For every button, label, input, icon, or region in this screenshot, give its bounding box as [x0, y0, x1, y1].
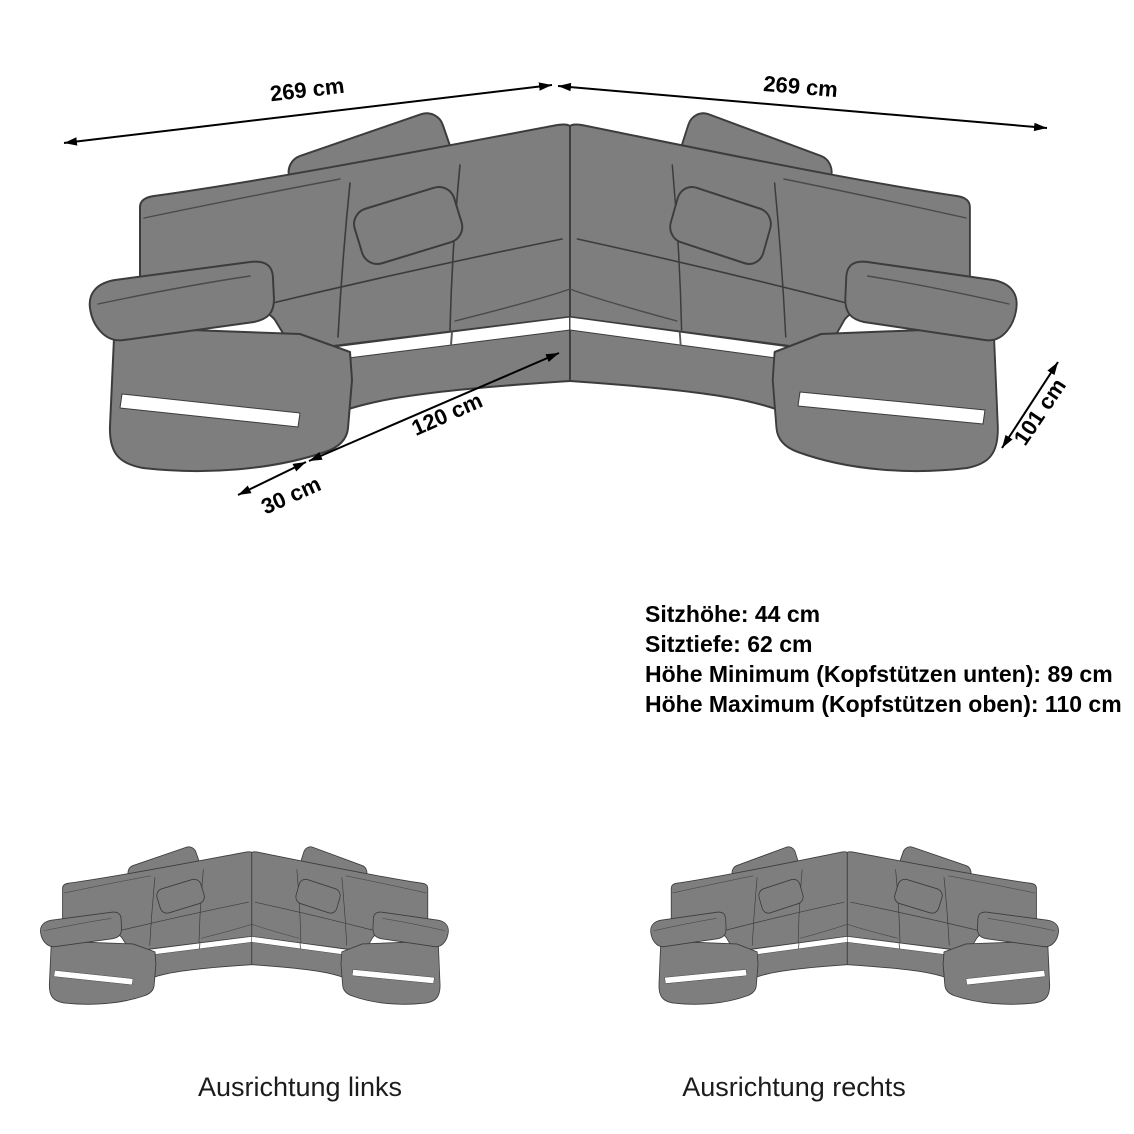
spec-line-seat-depth: Sitztiefe: 62 cm [645, 631, 812, 657]
dimension-label: 120 cm [408, 388, 486, 441]
product-dimension-diagram: 269 cm 269 cm 120 cm 30 cm 101 cm Sitzhö… [0, 0, 1134, 1134]
spec-line-height-min: Höhe Minimum (Kopfstützen unten): 89 cm [645, 661, 1113, 687]
variant-right-illustration [651, 845, 1059, 1004]
dimension-label: 30 cm [257, 471, 324, 519]
diagram-svg: 269 cm 269 cm 120 cm 30 cm 101 cm Sitzhö… [0, 0, 1134, 1134]
arm-pad [90, 262, 274, 341]
variant-left-label: Ausrichtung links [198, 1072, 402, 1102]
dimension-back-left: 269 cm [64, 73, 552, 143]
spec-line-height-max: Höhe Maximum (Kopfstützen oben): 110 cm [645, 691, 1122, 717]
dimension-label: 101 cm [1009, 374, 1071, 450]
dimension-side-depth: 101 cm [1002, 362, 1071, 450]
dimension-back-right: 269 cm [558, 71, 1047, 128]
corner-sofa-illustration [90, 109, 1017, 471]
dimension-arm-front: 30 cm [238, 462, 325, 519]
sofa-wing [90, 109, 570, 471]
dimension-label: 269 cm [762, 71, 838, 102]
spec-text-block: Sitzhöhe: 44 cm Sitztiefe: 62 cm Höhe Mi… [645, 601, 1122, 717]
dimension-label: 269 cm [269, 73, 346, 107]
variant-right-label: Ausrichtung rechts [682, 1072, 906, 1102]
led-stripe-seam [451, 332, 452, 345]
spec-line-seat-height: Sitzhöhe: 44 cm [645, 601, 820, 627]
variant-left-illustration [40, 845, 448, 1004]
